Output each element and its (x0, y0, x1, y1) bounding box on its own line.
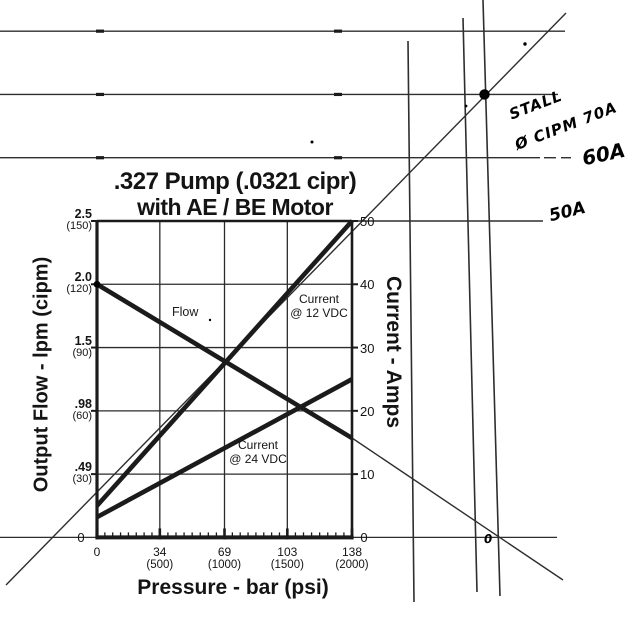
current-24vdc-label-line2: @ 24 VDC (226, 453, 290, 467)
pressure-bar-value: 138 (325, 546, 379, 559)
pressure-psi-value: (500) (133, 559, 187, 572)
flow-lpm-value: 2.5 (48, 208, 92, 220)
pressure-bar-value: 0 (70, 546, 124, 559)
current-12vdc-label-line2: @ 12 VDC (287, 307, 351, 321)
right-tick-label: 40 (360, 277, 374, 292)
x-tick-label: 69(1000) (198, 546, 252, 571)
left-tick-label: .49(30) (48, 461, 92, 485)
hand-vertical-line-2 (463, 18, 477, 592)
ink-speck (465, 105, 468, 108)
right-tick-label: 10 (360, 467, 374, 482)
ink-speck (523, 42, 526, 45)
pressure-psi-value: (1500) (260, 559, 314, 572)
handwritten-zero-mark: 0 (484, 532, 493, 547)
current-12vdc-label-line1: Current (287, 293, 351, 307)
flow-series-label: Flow (172, 305, 198, 319)
flow-cipm-value: (30) (48, 473, 92, 485)
x-tick-label: 34(500) (133, 546, 187, 571)
chart-title: .327 Pump (.0321 cipr) (70, 168, 400, 196)
current-12vdc-series-label: Current @ 12 VDC (287, 293, 351, 320)
flow-extension-line (352, 438, 563, 580)
flow-lpm-value: 1.5 (48, 335, 92, 347)
flow-cipm-value: (90) (48, 347, 92, 359)
ink-speck (311, 141, 314, 144)
right-tick-label: 50 (360, 214, 374, 229)
flow-cipm-value: (120) (48, 283, 92, 295)
pressure-psi-value: (2000) (325, 559, 379, 572)
pressure-bar-value: 103 (260, 546, 314, 559)
flow-line-start-blob (94, 281, 101, 288)
flow-lpm-value: 2.0 (48, 271, 92, 283)
ink-speck (209, 319, 211, 321)
pressure-psi-value: (1000) (198, 559, 252, 572)
x-tick-label: 103(1500) (260, 546, 314, 571)
y-axis-label-right: Current - Amps (381, 252, 405, 452)
hand-vertical-line-1 (408, 41, 414, 602)
x-axis-label: Pressure - bar (psi) (108, 576, 358, 600)
left-tick-label: 2.0(120) (48, 271, 92, 295)
left-axis-zero-label: 0 (74, 530, 88, 545)
current-24vdc-series-label: Current @ 24 VDC (226, 439, 290, 466)
left-tick-label: 2.5(150) (48, 208, 92, 232)
x-tick-label: 138(2000) (325, 546, 379, 571)
flow-cipm-value: (150) (48, 220, 92, 232)
current-24vdc-label-line1: Current (226, 439, 290, 453)
pressure-bar-value: 69 (198, 546, 252, 559)
pressure-bar-value: 34 (133, 546, 187, 559)
right-axis-zero-label: 0 (357, 530, 371, 545)
flow-lpm-value: .98 (48, 398, 92, 410)
flow-cipm-value: (60) (48, 410, 92, 422)
scanned-pump-chart-page: .327 Pump (.0321 cipr) with AE / BE Moto… (0, 0, 635, 618)
stall-point-dot (479, 89, 489, 99)
x-tick-label: 0 (70, 546, 124, 559)
left-tick-label: 1.5(90) (48, 335, 92, 359)
left-tick-label: .98(60) (48, 398, 92, 422)
right-tick-label: 30 (360, 341, 374, 356)
right-tick-label: 20 (360, 404, 374, 419)
chart-subtitle: with AE / BE Motor (70, 194, 400, 221)
flow-lpm-value: .49 (48, 461, 92, 473)
